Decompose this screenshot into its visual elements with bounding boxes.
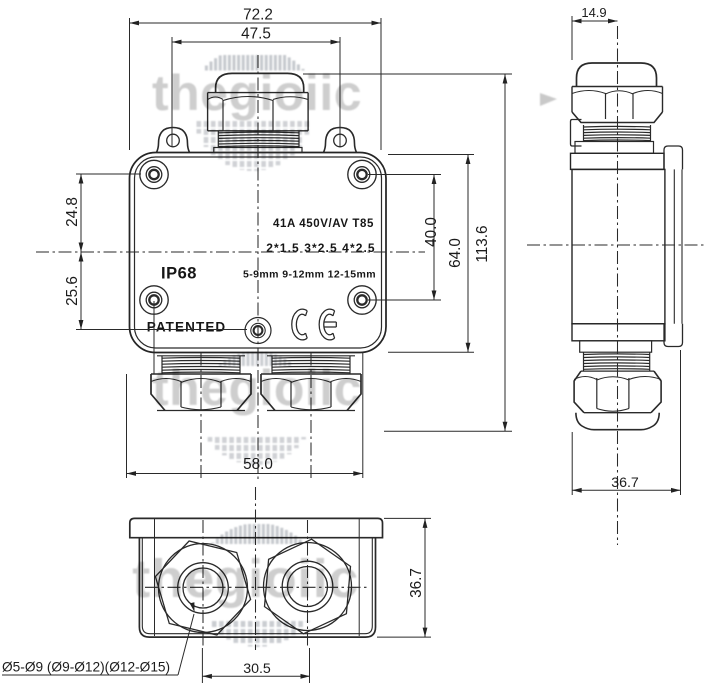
svg-text:36.7: 36.7 (611, 475, 639, 491)
svg-text:thegioiic: thegioiic (152, 65, 362, 121)
svg-text:25.6: 25.6 (64, 276, 81, 306)
svg-text:72.2: 72.2 (243, 7, 273, 24)
svg-text:2*1.5 3*2.5 4*2.5: 2*1.5 3*2.5 4*2.5 (266, 241, 375, 255)
svg-text:14.9: 14.9 (581, 5, 606, 20)
svg-text:64.0: 64.0 (447, 238, 464, 268)
svg-text:30.5: 30.5 (243, 661, 271, 677)
svg-text:47.5: 47.5 (241, 26, 271, 43)
svg-text:5-9mm 9-12mm 12-15mm: 5-9mm 9-12mm 12-15mm (243, 269, 376, 281)
svg-text:thegioiic: thegioiic (132, 549, 359, 609)
svg-text:PATENTED: PATENTED (147, 320, 227, 335)
svg-text:113.6: 113.6 (474, 225, 491, 262)
svg-text:IP68: IP68 (161, 265, 197, 283)
svg-text:40.0: 40.0 (423, 217, 440, 247)
svg-text:24.8: 24.8 (64, 197, 81, 227)
svg-text:thegioiic: thegioiic (152, 360, 362, 416)
svg-text:36.7: 36.7 (408, 568, 425, 598)
svg-text:41A 450V/AV T85: 41A 450V/AV T85 (273, 218, 374, 230)
svg-text:Ø5-Ø9 (Ø9-Ø12)(Ø12-Ø15): Ø5-Ø9 (Ø9-Ø12)(Ø12-Ø15) (2, 660, 170, 675)
